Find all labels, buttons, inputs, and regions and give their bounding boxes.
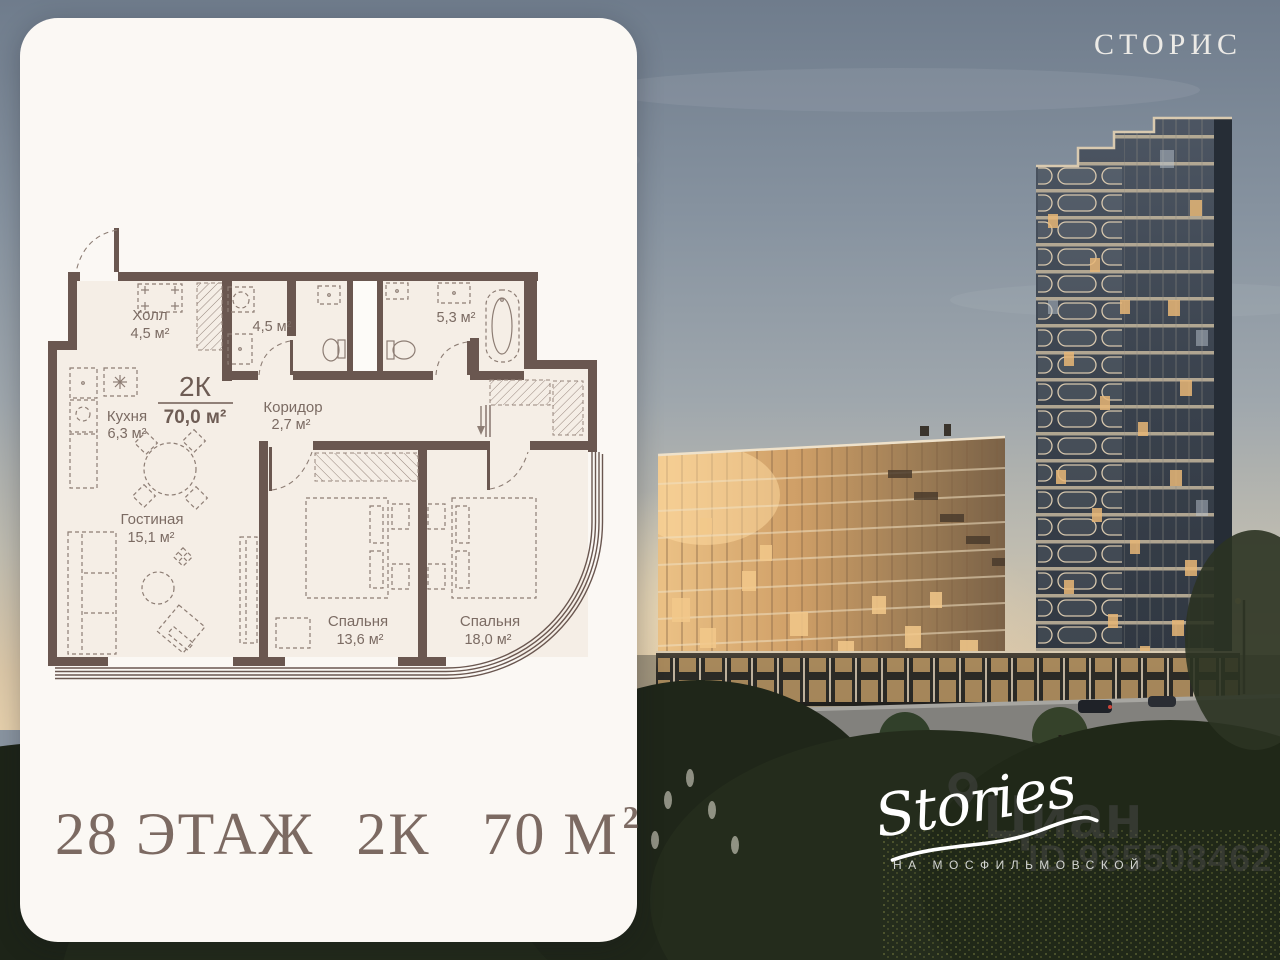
room-label-hall: Холл <box>132 307 167 324</box>
wall <box>524 281 537 369</box>
room-label-living: Гостиная <box>121 511 184 528</box>
room-area-corridor: 2,7 м² <box>272 417 311 433</box>
caption-area-sup: 2 <box>623 799 641 836</box>
walkin-closet-b <box>553 381 583 435</box>
wall <box>233 657 285 666</box>
room-label-bedroom-2: Спальня <box>460 613 520 630</box>
door-leaf <box>114 228 119 272</box>
door-arc <box>76 230 117 272</box>
walkin-closet-a <box>490 380 550 405</box>
floor-plan: Холл 4,5 м² 4,5 м² 5,3 м² 2К 70,0 м² Кух… <box>40 222 610 684</box>
wall <box>222 281 232 381</box>
bedroom1-closet <box>315 453 418 481</box>
wall <box>588 360 597 452</box>
stories-logo-subtitle: НА МОСФИЛЬМОВСКОЙ <box>893 858 1145 872</box>
wall <box>347 371 383 380</box>
wall <box>398 657 446 666</box>
room-area-bathroom-2: 5,3 м² <box>437 310 476 326</box>
stove-icon <box>113 375 127 389</box>
wall <box>418 441 427 666</box>
room-label-corridor: Коридор <box>263 399 322 416</box>
door-leaf <box>269 447 272 491</box>
wall <box>259 441 268 666</box>
wall <box>524 360 597 369</box>
caption-area: 70 М2 <box>482 800 640 869</box>
wall <box>427 441 490 450</box>
caption: 28 ЭТАЖ 2К 70 М2 <box>55 800 641 869</box>
roof-figure <box>920 426 929 436</box>
wall <box>48 341 57 666</box>
wall <box>530 441 597 450</box>
door-leaf <box>290 340 293 375</box>
wall <box>377 281 383 380</box>
room-label-bedroom-1: Спальня <box>328 613 388 630</box>
room-area-bedroom-1: 13,6 м² <box>336 632 383 648</box>
room-area-bedroom-2: 18,0 м² <box>464 632 511 648</box>
wall <box>470 338 479 380</box>
caption-layout: 2К <box>356 800 430 869</box>
wall <box>293 371 353 380</box>
door-leaf <box>467 341 470 375</box>
room-area-bathroom-1: 4,5 м² <box>253 319 292 335</box>
wall <box>118 272 538 281</box>
room-area-hall: 4,5 м² <box>131 326 170 342</box>
caption-floor: 28 ЭТАЖ <box>55 800 314 869</box>
wall <box>313 441 427 450</box>
wall <box>48 657 108 666</box>
car <box>1148 696 1176 707</box>
wall <box>347 281 353 380</box>
plan-total-area: 70,0 м² <box>164 407 227 428</box>
wall <box>479 371 524 380</box>
wall <box>383 371 433 380</box>
room-area-living: 15,1 м² <box>127 530 174 546</box>
wall <box>232 371 258 380</box>
room-label-kitchen: Кухня <box>107 408 147 425</box>
plan-type-label: 2К <box>179 371 212 402</box>
roof-figure <box>944 424 951 436</box>
room-area-kitchen: 6,3 м² <box>108 426 147 442</box>
car <box>1078 700 1112 713</box>
wordmark: СТОРИС <box>1094 28 1242 62</box>
hall-closet <box>197 283 222 350</box>
door-leaf <box>487 450 490 490</box>
wall <box>68 272 77 350</box>
